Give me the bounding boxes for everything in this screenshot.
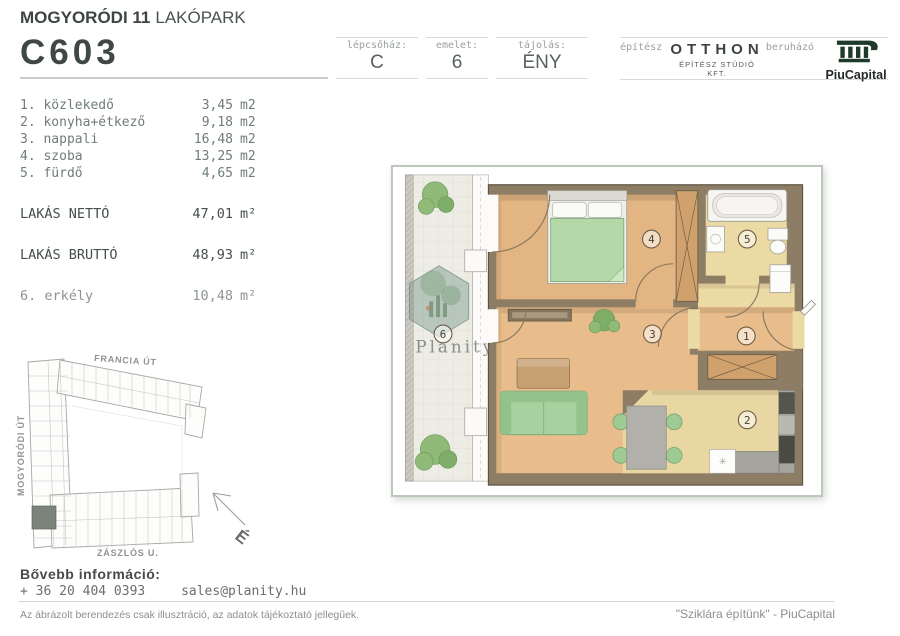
street-label-bottom: ZÁSZLÓS U. xyxy=(97,547,159,558)
street-label-top: FRANCIA ÚT xyxy=(94,352,157,367)
room-number-bath: 5 xyxy=(744,233,751,246)
piucapital-logo-icon xyxy=(824,38,888,64)
wardrobe-entry xyxy=(708,355,777,380)
balcony-row: 6. erkély 10,48 m² xyxy=(20,288,264,305)
email-address: sales@planity.hu xyxy=(181,584,306,599)
room-area: 9,18 xyxy=(181,114,233,131)
watermark-text: Planity xyxy=(415,337,495,357)
svg-text:✳: ✳ xyxy=(719,456,727,466)
project-title-light: LAKÓPARK xyxy=(155,8,245,27)
room-name: 3. nappali xyxy=(20,131,181,148)
floor-plan-frame: ✳ xyxy=(391,165,823,497)
unit-code: C603 xyxy=(20,33,120,73)
room-area: 3,45 xyxy=(181,97,233,114)
room-number-kitchen: 2 xyxy=(744,414,751,427)
developer-label: beruházó xyxy=(766,42,814,53)
washing-machine xyxy=(770,265,791,293)
room-number-living: 3 xyxy=(649,328,656,341)
room-row: 1. közlekedő 3,45 m2 xyxy=(20,97,264,114)
coffee-table xyxy=(517,359,569,389)
total-unit: m² xyxy=(240,247,264,264)
unit-underline xyxy=(20,77,328,79)
room-area: 16,48 xyxy=(181,131,233,148)
room-unit: m2 xyxy=(240,114,264,131)
room-name: 5. fürdő xyxy=(20,165,181,182)
info-cell-floor: emelet: 6 xyxy=(426,37,488,79)
architect-subtitle: ÉPÍTÉSZ STÚDIÓ KFT. xyxy=(668,60,766,78)
total-label: LAKÁS BRUTTÓ xyxy=(20,247,181,264)
developer-name: PiuCapital xyxy=(824,68,888,82)
floor-value: 6 xyxy=(426,52,488,74)
balcony-unit: m² xyxy=(240,288,264,305)
balcony-area: 10,48 xyxy=(181,288,233,305)
footer-contacts: + 36 20 404 0393 sales@planity.hu xyxy=(20,584,306,599)
site-plan: FRANCIA ÚT MOGYORÓDI ÚT ZÁSZLÓS U. É xyxy=(2,346,272,574)
wardrobe-tall xyxy=(676,191,698,302)
floor-label: emelet: xyxy=(426,40,488,51)
balcony-name: 6. erkély xyxy=(20,288,181,305)
architect-label: építész xyxy=(620,42,662,53)
room-row: 5. fürdő 4,65 m2 xyxy=(20,165,264,182)
room-unit: m2 xyxy=(240,97,264,114)
total-label: LAKÁS NETTÓ xyxy=(20,206,181,223)
total-area: 48,93 xyxy=(181,247,233,264)
room-row: 3. nappali 16,48 m2 xyxy=(20,131,264,148)
orientation-label: tájolás: xyxy=(496,40,588,51)
room-name: 1. közlekedő xyxy=(20,97,181,114)
room-number-hall: 1 xyxy=(743,330,750,343)
room-number-balcony: 6 xyxy=(440,328,447,341)
apartment-datasheet: MOGYORÓDI 11LAKÓPARK C603 lépcsőház: C e… xyxy=(0,0,900,636)
north-label: É xyxy=(232,526,253,548)
developer-block: PiuCapital xyxy=(824,38,888,82)
disclaimer-text: Az ábrázolt berendezés csak illusztráció… xyxy=(20,609,359,621)
floor-plan: ✳ xyxy=(393,167,817,491)
project-title-bold: MOGYORÓDI 11 xyxy=(20,8,150,27)
room-number-bedroom: 4 xyxy=(648,233,655,246)
info-cell-staircase: lépcsőház: C xyxy=(336,37,418,79)
tv-shelf xyxy=(508,309,571,321)
phone-number: + 36 20 404 0393 xyxy=(20,584,145,599)
sofa xyxy=(500,391,587,434)
total-unit: m² xyxy=(240,206,264,223)
total-gross-row: LAKÁS BRUTTÓ 48,93 m² xyxy=(20,247,264,264)
street-label-left: MOGYORÓDI ÚT xyxy=(15,415,26,496)
unit-info-table: lépcsőház: C emelet: 6 tájolás: ÉNY xyxy=(336,37,588,79)
staircase-value: C xyxy=(336,52,418,74)
staircase-label: lépcsőház: xyxy=(336,40,418,51)
room-unit: m2 xyxy=(240,165,264,182)
room-unit: m2 xyxy=(240,148,264,165)
total-net-row: LAKÁS NETTÓ 47,01 m² xyxy=(20,206,264,223)
site-plan-highlighted-unit xyxy=(32,506,56,529)
footer-divider xyxy=(18,601,834,602)
north-arrow-icon: É xyxy=(213,493,252,548)
room-row: 2. konyha+étkező 9,18 m2 xyxy=(20,114,264,131)
room-area: 4,65 xyxy=(181,165,233,182)
architect-block: OTTHON ÉPÍTÉSZ STÚDIÓ KFT. xyxy=(668,38,766,78)
sink xyxy=(707,226,725,252)
footer-info-title: Bővebb információ: xyxy=(20,566,160,582)
room-list: 1. közlekedő 3,45 m2 2. konyha+étkező 9,… xyxy=(20,97,264,305)
firm-block: építész OTTHON ÉPÍTÉSZ STÚDIÓ KFT. beruh… xyxy=(620,37,888,80)
orientation-value: ÉNY xyxy=(496,52,588,74)
room-unit: m2 xyxy=(240,131,264,148)
architect-name: OTTHON xyxy=(668,41,766,58)
company-slogan: "Sziklára építünk" - PiuCapital xyxy=(676,607,835,621)
room-name: 4. szoba xyxy=(20,148,181,165)
bathtub xyxy=(708,190,787,222)
room-name: 2. konyha+étkező xyxy=(20,114,181,131)
info-cell-orientation: tájolás: ÉNY xyxy=(496,37,588,79)
project-title: MOGYORÓDI 11LAKÓPARK xyxy=(20,8,246,28)
room-row: 4. szoba 13,25 m2 xyxy=(20,148,264,165)
bed xyxy=(548,191,627,284)
room-area: 13,25 xyxy=(181,148,233,165)
total-area: 47,01 xyxy=(181,206,233,223)
